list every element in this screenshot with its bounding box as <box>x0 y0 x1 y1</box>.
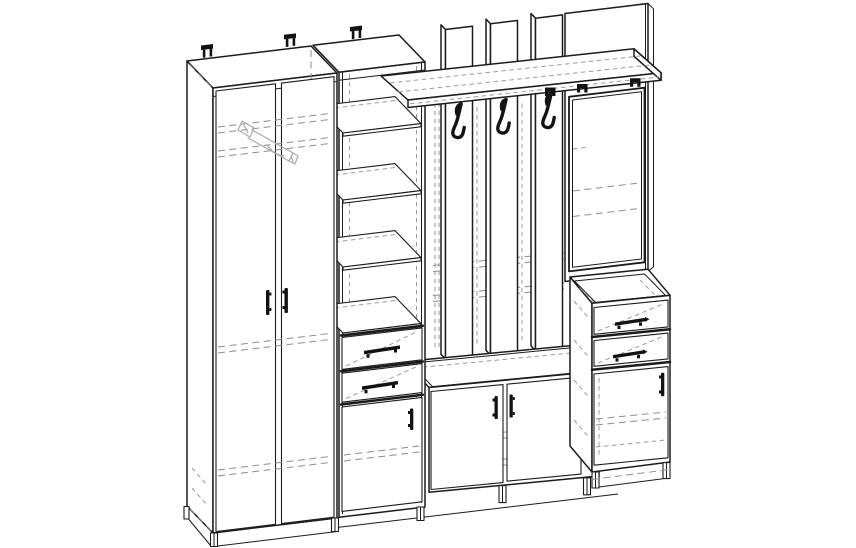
wardrobe-leg <box>332 518 339 532</box>
cabinet-door <box>594 367 668 466</box>
cabinet-leg <box>592 472 599 488</box>
wall-bracket <box>284 33 296 47</box>
column-leg <box>417 507 424 521</box>
wall-bracket <box>350 26 362 40</box>
wardrobe-leg <box>184 507 189 520</box>
mirror <box>569 88 645 272</box>
drawer-cabinet <box>570 269 670 488</box>
bench-leg <box>584 478 591 495</box>
bench-door-left <box>431 385 503 490</box>
furniture-technical-drawing: Hallway entryway furniture set: two-door… <box>0 0 856 548</box>
wardrobe-leg <box>211 533 218 547</box>
drawing-page: Hallway entryway furniture set: two-door… <box>0 0 856 548</box>
wall-bracket <box>201 44 213 58</box>
wardrobe <box>184 46 339 547</box>
mirror-section <box>565 4 654 282</box>
bench-leg <box>499 486 506 503</box>
